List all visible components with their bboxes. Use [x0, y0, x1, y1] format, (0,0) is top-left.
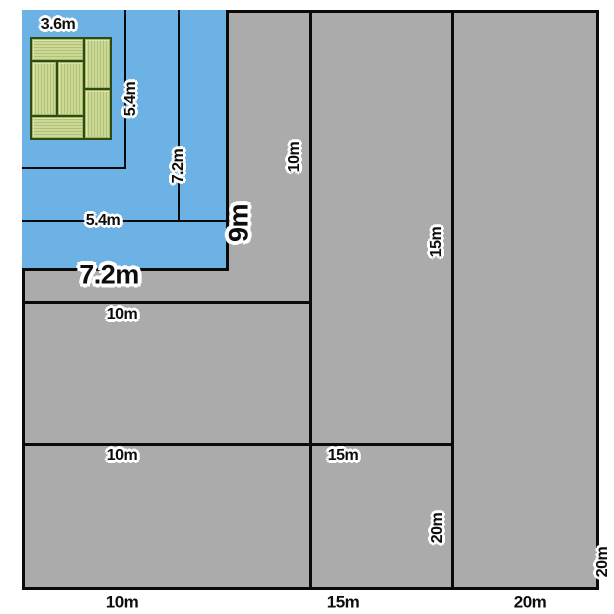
dim-label-7-2m-height: 7.2m	[171, 149, 187, 183]
dim-label-20m-height-b: 20m	[595, 547, 611, 578]
dim-label-5-4m-height: 5.4m	[123, 82, 139, 116]
tatami-mat	[85, 90, 110, 138]
grid-line-15m-horizontal	[22, 443, 454, 446]
dim-label-20m-height-a: 20m	[430, 513, 446, 544]
dim-label-10m-width-b: 10m	[107, 448, 138, 464]
scale-label-10m: 10m	[106, 594, 139, 611]
tatami-room	[30, 37, 112, 140]
tatami-mat	[32, 117, 83, 138]
dim-label-3-6m-width: 3.6m	[41, 17, 75, 33]
dim-label-7-2m-width: 7.2m	[79, 262, 139, 289]
grid-line-15m-vertical	[451, 10, 454, 590]
dim-label-9m-height: 9m	[226, 204, 253, 242]
size-comparison-diagram: 3.6m 5.4m 7.2m 5.4m 9m 7.2m 10m 15m 10m …	[0, 0, 614, 614]
dim-label-5-4m-width: 5.4m	[86, 213, 120, 229]
dim-label-10m-width-a: 10m	[107, 307, 138, 323]
tatami-mat	[32, 62, 56, 115]
tatami-mat	[85, 39, 110, 88]
dim-label-10m-height: 10m	[287, 142, 303, 173]
grid-line-10m-vertical	[309, 10, 312, 590]
scale-label-20m: 20m	[514, 594, 547, 611]
tatami-mat	[58, 62, 83, 115]
dim-line-5-4m-width-edge	[178, 10, 180, 222]
grid-line-10m-horizontal	[22, 301, 312, 304]
scale-label-15m: 15m	[327, 594, 360, 611]
dim-label-15m-height: 15m	[429, 227, 445, 258]
tatami-mat	[32, 39, 83, 60]
dim-line-7-2m-height-edge	[22, 220, 229, 222]
dim-line-5-4m-height-edge	[22, 167, 126, 169]
dim-label-15m-width: 15m	[328, 448, 359, 464]
